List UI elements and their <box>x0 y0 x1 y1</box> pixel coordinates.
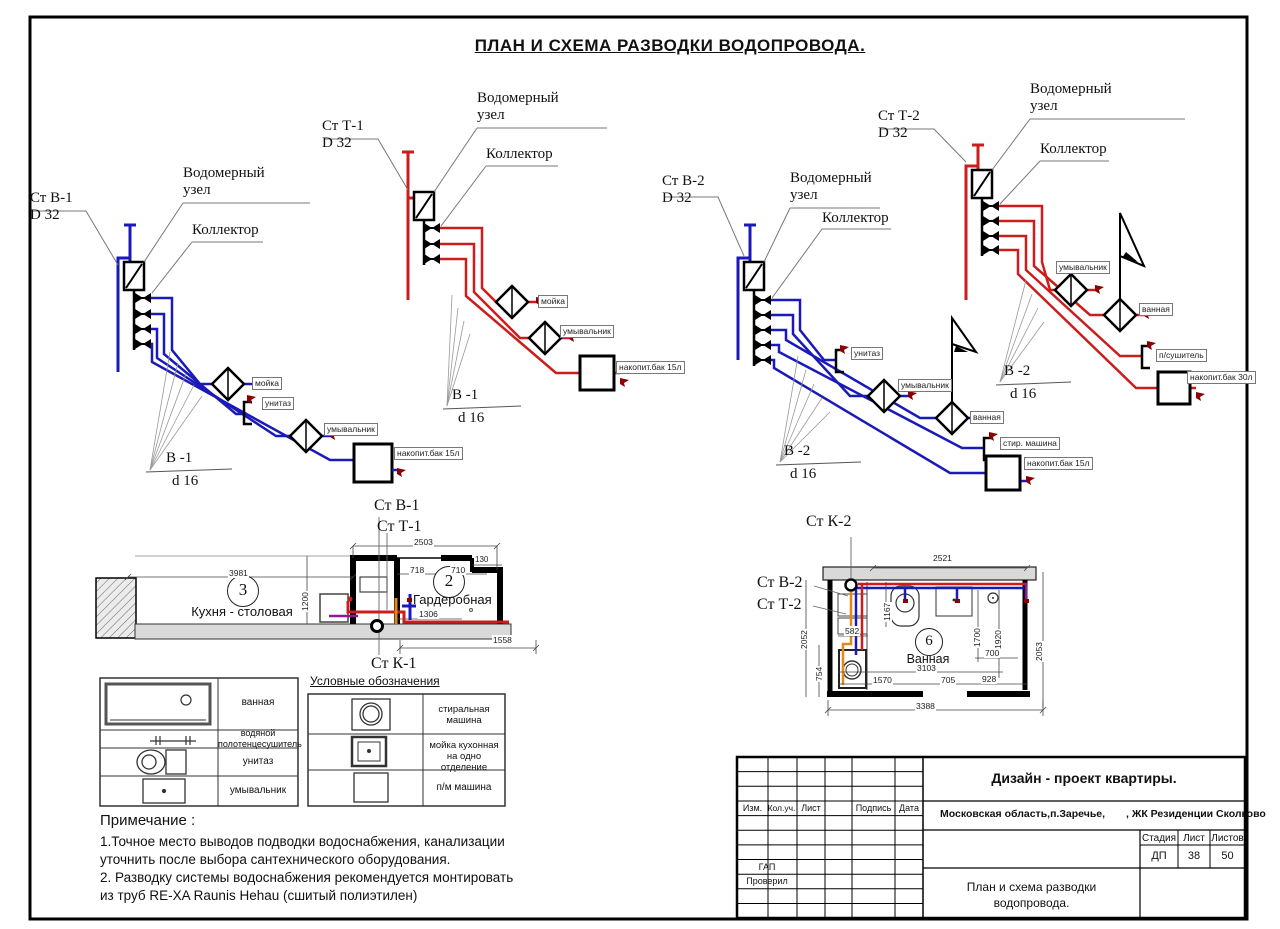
dim-754: 754 <box>814 666 824 682</box>
dim-718: 718 <box>409 565 425 575</box>
s3-stack: Ст В-2 <box>662 173 705 190</box>
s3-collector-label: Коллектор <box>822 210 889 227</box>
s4-branch-dia: d 16 <box>1010 386 1036 403</box>
wall-band <box>135 624 511 639</box>
s2-meter2: узел <box>477 107 559 124</box>
s4-diameter: D 32 <box>878 125 920 142</box>
s1-stack-label: Ст В-1 D 32 <box>30 190 73 224</box>
s2-stack-label: Ст Т-1 D 32 <box>322 118 364 152</box>
s3-branch-dia: d 16 <box>790 466 816 483</box>
wall-band <box>823 567 1036 580</box>
schematic-1-cold-kitchen <box>32 203 406 482</box>
titleblock-row-proveril: Проверил <box>737 876 797 886</box>
s4-meter2: узел <box>1030 98 1112 115</box>
s1-branch-dia: d 16 <box>172 473 198 490</box>
s3-diameter: D 32 <box>662 190 705 207</box>
dishwasher-icon <box>354 773 388 802</box>
s3-meter2: узел <box>790 187 872 204</box>
s2-collector-label: Коллектор <box>486 146 553 163</box>
towel-dryer-tap-symbol <box>1142 346 1150 368</box>
plan-stack-k2: Ст К-2 <box>806 513 851 531</box>
s4-branch-label: В -2 <box>1004 363 1030 380</box>
s2-diameter: D 32 <box>322 135 364 152</box>
legend-washbasin-label: умывальник <box>218 785 298 796</box>
s1-meter1: Водомерный <box>183 165 265 182</box>
fixture-label-tank: накопит.бак 15л <box>394 447 463 460</box>
notes-heading: Примечание : <box>100 812 195 829</box>
titleblock-sheets-value: 50 <box>1210 850 1245 862</box>
fixture-label-tank: накопит.бак 15л <box>616 361 685 374</box>
fixture-label-tank: накопит.бак 15л <box>1024 457 1093 470</box>
fixture-label-washbasin: умывальник <box>898 379 952 392</box>
dim-1167: 1167 <box>882 602 892 622</box>
tank-symbol <box>354 444 392 482</box>
room-name-kitchen: Кухня - столовая <box>162 604 322 619</box>
dim-3981: 3981 <box>228 568 249 578</box>
dim-3103: 3103 <box>916 663 937 673</box>
titleblock-stage-value: ДП <box>1140 850 1178 862</box>
fixture-label-tank: накопит.бак 30л <box>1187 371 1256 384</box>
fixture-label-toilet: унитаз <box>262 397 294 410</box>
drawing-sheet: ПЛАН И СХЕМА РАЗВОДКИ ВОДОПРОВОДА. Ст В-… <box>0 0 1280 929</box>
kitchen-floor-plan <box>96 517 539 655</box>
fixture-label-washbasin: умывальник <box>560 325 614 338</box>
room-name-wardrobe: Гардеробная <box>413 592 492 607</box>
titleblock-col-kol: Кол.уч. <box>766 803 797 813</box>
note-line-3: 2. Разводку системы водоснабжения рекоме… <box>100 870 513 885</box>
titleblock-location: Московская область,п.Заречье, <box>940 808 1105 820</box>
wall-column <box>96 578 136 638</box>
titleblock-project: Дизайн - проект квартиры. <box>925 770 1243 786</box>
plan-stack-t2: Ст Т-2 <box>757 596 802 614</box>
dim-1700: 1700 <box>972 627 982 648</box>
dim-700: 700 <box>984 648 1000 658</box>
legend-dishwasher-label: п/м машина <box>423 782 505 793</box>
s2-branch-dia: d 16 <box>458 410 484 427</box>
dim-2521: 2521 <box>932 553 953 563</box>
note-line-2: уточнить после выбора сантехнического об… <box>100 852 450 867</box>
legend-kitchen-sink-label: мойка кухонная на одно отделение <box>423 740 505 773</box>
legend-header: Условные обозначения <box>310 674 440 688</box>
s3-branch-label: В -2 <box>784 443 810 460</box>
tank-symbol <box>580 356 614 390</box>
legend-washing-machine-label: стиральная машина <box>423 704 505 726</box>
s2-meter-label: Водомерный узел <box>477 90 559 124</box>
toilet-tap-symbol <box>836 350 844 372</box>
tank-symbol <box>986 456 1020 490</box>
titleblock-col-data: Дата <box>895 803 923 813</box>
note-line-1: 1.Точное место выводов подводки водоснаб… <box>100 834 505 849</box>
s1-meter-label: Водомерный узел <box>183 165 265 199</box>
fixture-label-bath: ванная <box>1139 303 1173 316</box>
fixture-label-washer: стир. машина <box>1000 437 1060 450</box>
s2-branch-label: В -1 <box>452 387 478 404</box>
sheet-title: ПЛАН И СХЕМА РАЗВОДКИ ВОДОПРОВОДА. <box>390 36 950 56</box>
titleblock-col-podpis: Подпись <box>852 803 895 813</box>
s1-branch-label: В -1 <box>166 450 192 467</box>
s4-stack-label: Ст Т-2 D 32 <box>878 108 920 142</box>
shower-flag-icon <box>952 318 976 352</box>
plan-stack-t1: Ст Т-1 <box>377 518 422 536</box>
dim-1200: 1200 <box>300 591 310 612</box>
titleblock-row-gap: ГАП <box>737 862 797 872</box>
dim-705: 705 <box>940 675 956 685</box>
room-number-3: 3 <box>227 575 259 607</box>
plan-stack-k1: Ст К-1 <box>371 655 416 673</box>
fixture-label-washbasin: умывальник <box>324 423 378 436</box>
dim-710: 710 <box>450 565 466 575</box>
s1-meter2: узел <box>183 182 265 199</box>
titleblock-sheets-label: Листов <box>1210 833 1245 844</box>
bathtub-icon <box>106 684 210 724</box>
s3-meter1: Водомерный <box>790 170 872 187</box>
legend-toilet-label: унитаз <box>218 756 298 767</box>
dim-130: 130 <box>474 555 489 564</box>
dim-2503: 2503 <box>413 537 434 547</box>
s2-meter1: Водомерный <box>477 90 559 107</box>
legend-bathtub-label: ванная <box>218 697 298 708</box>
titleblock-col-izm: Изм. <box>738 803 767 813</box>
s1-collector-label: Коллектор <box>192 222 259 239</box>
dim-1306: 1306 <box>418 609 439 619</box>
s4-meter-label: Водомерный узел <box>1030 81 1112 115</box>
fixture-label-washbasin: умывальник <box>1056 261 1110 274</box>
titleblock-doc-title-1: План и схема разводки <box>923 880 1140 894</box>
titleblock-sheet-label: Лист <box>1178 833 1210 844</box>
s4-collector-label: Коллектор <box>1040 141 1107 158</box>
dim-928: 928 <box>981 674 997 684</box>
dim-3388: 3388 <box>915 701 936 711</box>
dim-2052: 2052 <box>799 629 809 650</box>
bathroom-floor-plan <box>806 537 1046 716</box>
s3-meter-label: Водомерный узел <box>790 170 872 204</box>
s3-stack-label: Ст В-2 D 32 <box>662 173 705 207</box>
titleblock-complex: , ЖК Резиденции Сколково <box>1126 808 1266 820</box>
plan-stack-v2: Ст В-2 <box>757 574 802 592</box>
fixture-label-sink: мойка <box>252 377 282 390</box>
tank-symbol <box>1158 372 1190 404</box>
titleblock-stage-label: Стадия <box>1140 833 1178 844</box>
dim-1558: 1558 <box>492 635 513 645</box>
washbasin-icon <box>143 779 185 803</box>
s4-stack: Ст Т-2 <box>878 108 920 125</box>
schematic-2-hot-kitchen <box>324 128 629 409</box>
washing-machine-icon <box>352 699 390 730</box>
s1-stack: Ст В-1 <box>30 190 73 207</box>
dim-1570: 1570 <box>872 675 893 685</box>
titleblock-col-list: Лист <box>797 803 825 813</box>
plan-stack-v1: Ст В-1 <box>374 497 419 515</box>
note-line-4: из труб RE-XA Raunis Hehau (сшитый полиэ… <box>100 888 417 903</box>
titleblock-sheet-value: 38 <box>1178 850 1210 862</box>
schematic-3-cold-bath <box>664 197 1035 490</box>
dim-582: 582 <box>844 626 860 636</box>
s2-stack: Ст Т-1 <box>322 118 364 135</box>
sewer-riser-k2 <box>846 580 857 591</box>
fixture-label-toilet: унитаз <box>851 347 883 360</box>
s4-meter1: Водомерный <box>1030 81 1112 98</box>
legend-towel-dryer-label: водяной полотенцесушитель <box>218 728 298 750</box>
towel-dryer-icon <box>150 736 196 745</box>
toilet-icon <box>137 750 186 774</box>
s1-diameter: D 32 <box>30 207 73 224</box>
dim-1920: 1920 <box>993 629 1003 650</box>
fixture-label-dryer: п/сушитель <box>1156 349 1207 362</box>
titleblock-doc-title-2: водопровода. <box>923 896 1140 910</box>
fixture-label-sink: мойка <box>538 295 568 308</box>
kitchen-sink-icon <box>352 737 386 766</box>
sewer-riser-k1 <box>372 621 383 632</box>
dim-2053: 2053 <box>1034 641 1044 662</box>
fixture-label-bath: ванная <box>970 411 1004 424</box>
